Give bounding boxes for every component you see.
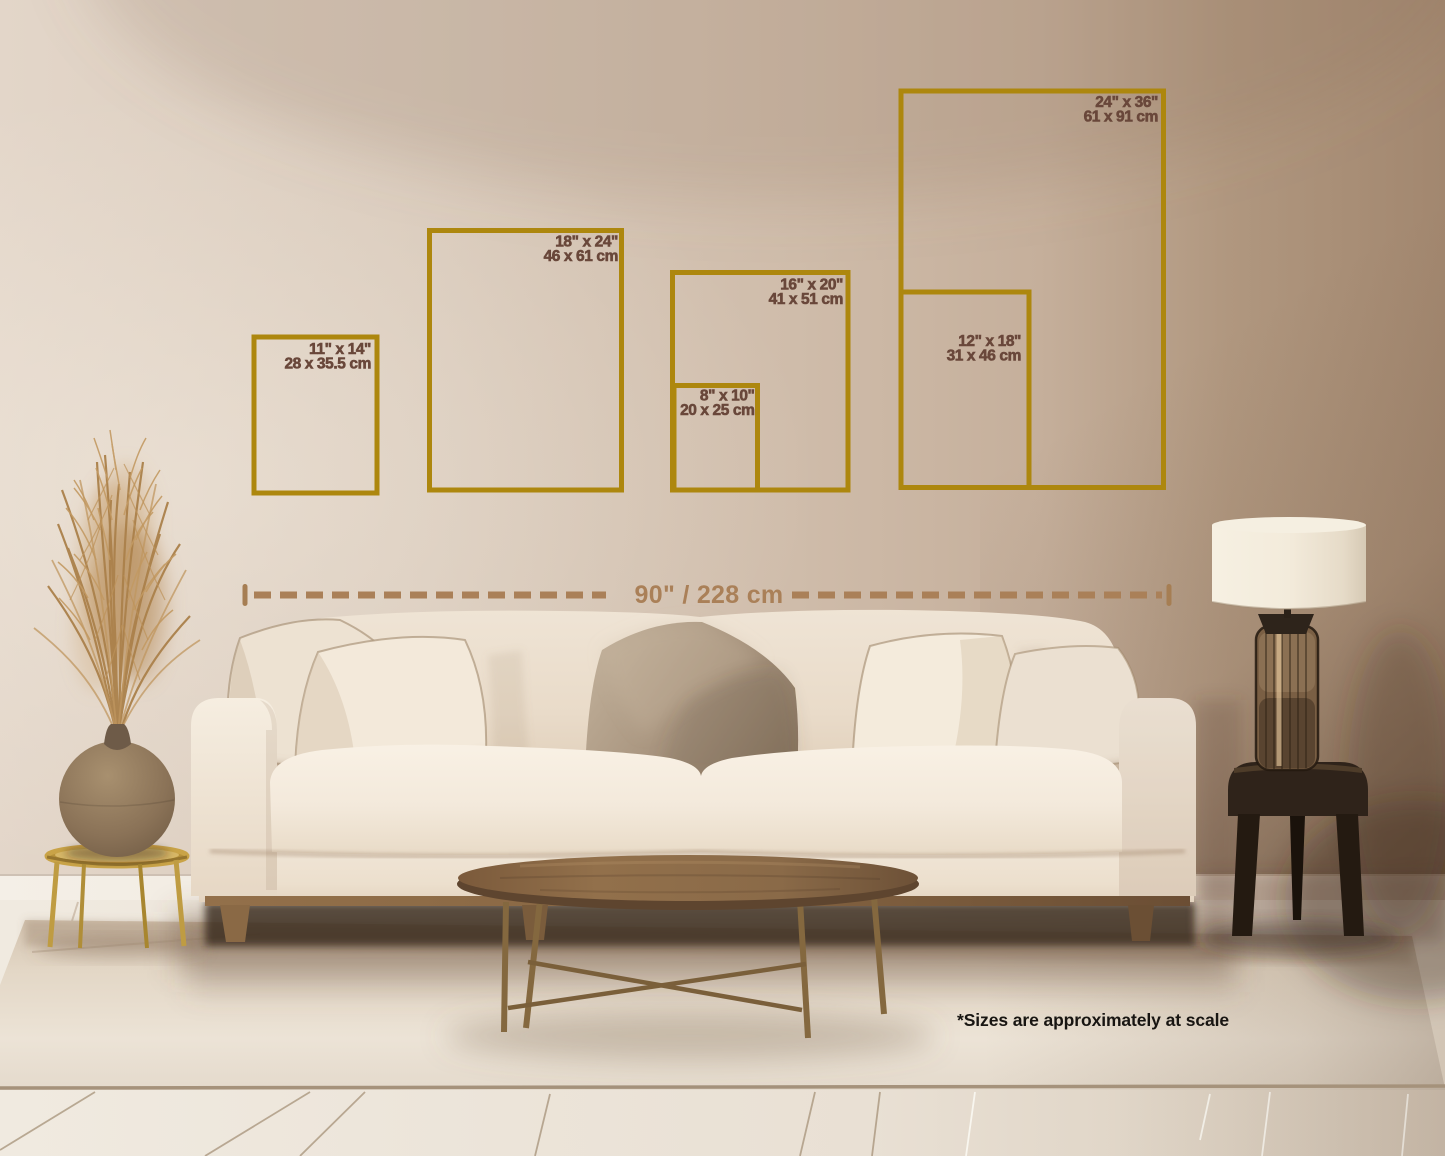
- svg-text:90" / 228 cm: 90" / 228 cm: [635, 581, 784, 609]
- svg-text:31 x 46 cm: 31 x 46 cm: [947, 348, 1021, 365]
- svg-text:41 x 51 cm: 41 x 51 cm: [769, 291, 843, 308]
- svg-text:61 x 91 cm: 61 x 91 cm: [1084, 109, 1158, 126]
- svg-text:46 x 61 cm: 46 x 61 cm: [544, 248, 618, 265]
- svg-text:*Sizes are approximately at sc: *Sizes are approximately at scale: [957, 1010, 1229, 1030]
- svg-text:28 x 35.5 cm: 28 x 35.5 cm: [284, 356, 371, 373]
- svg-text:20 x 25 cm: 20 x 25 cm: [680, 402, 754, 419]
